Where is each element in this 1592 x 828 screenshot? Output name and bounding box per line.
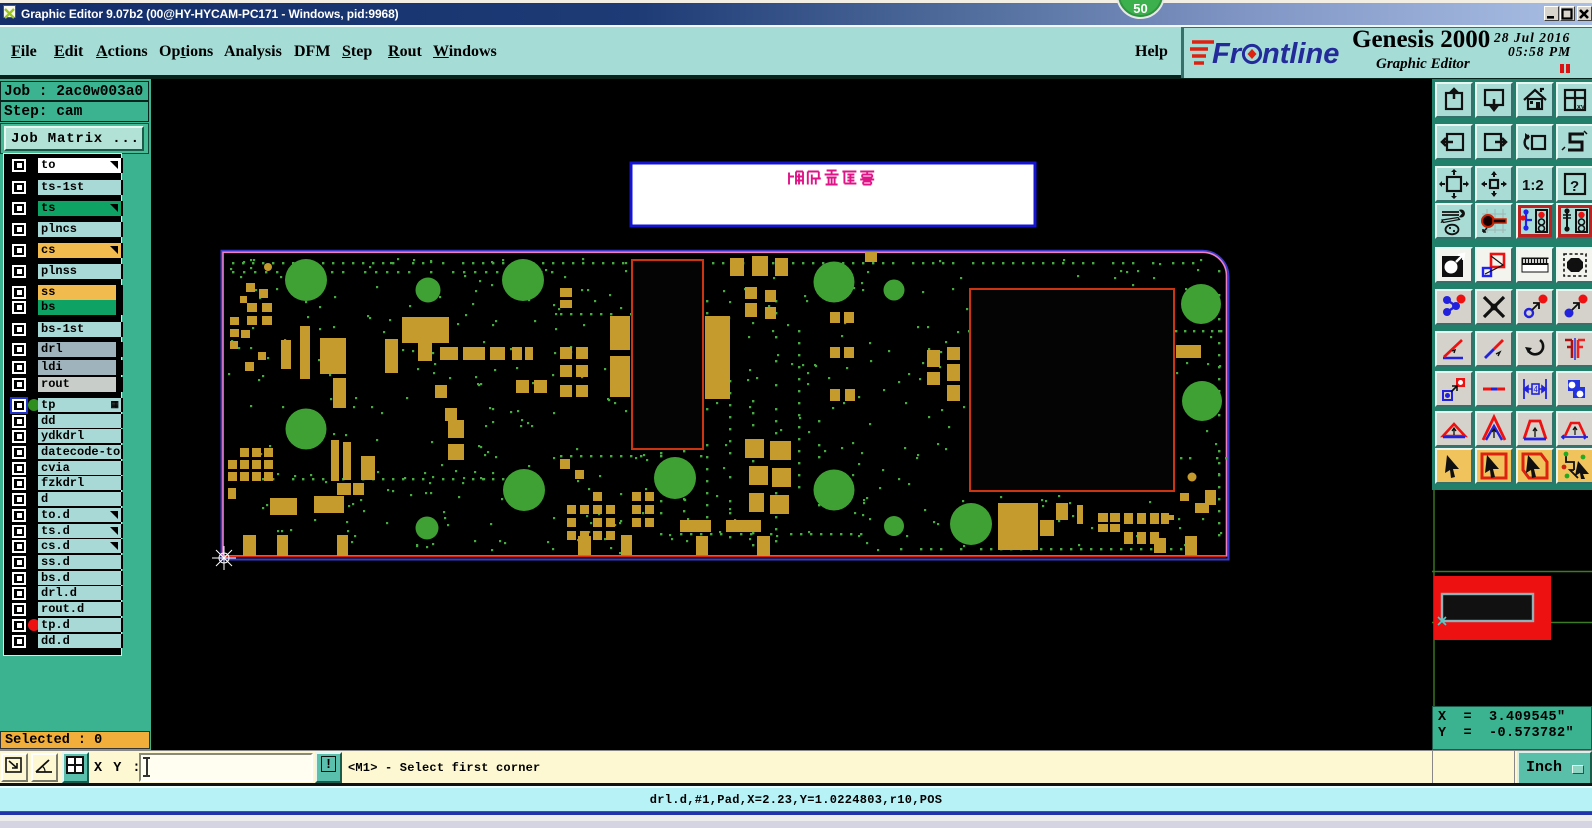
svg-text:xy: xy xyxy=(1577,104,1585,111)
svg-text:ntline: ntline xyxy=(1262,38,1339,70)
svg-text:4: 4 xyxy=(1533,385,1538,394)
svg-text:?: ? xyxy=(1570,178,1579,195)
svg-text:Fr: Fr xyxy=(1212,38,1243,70)
svg-text:1:2: 1:2 xyxy=(1522,177,1544,194)
